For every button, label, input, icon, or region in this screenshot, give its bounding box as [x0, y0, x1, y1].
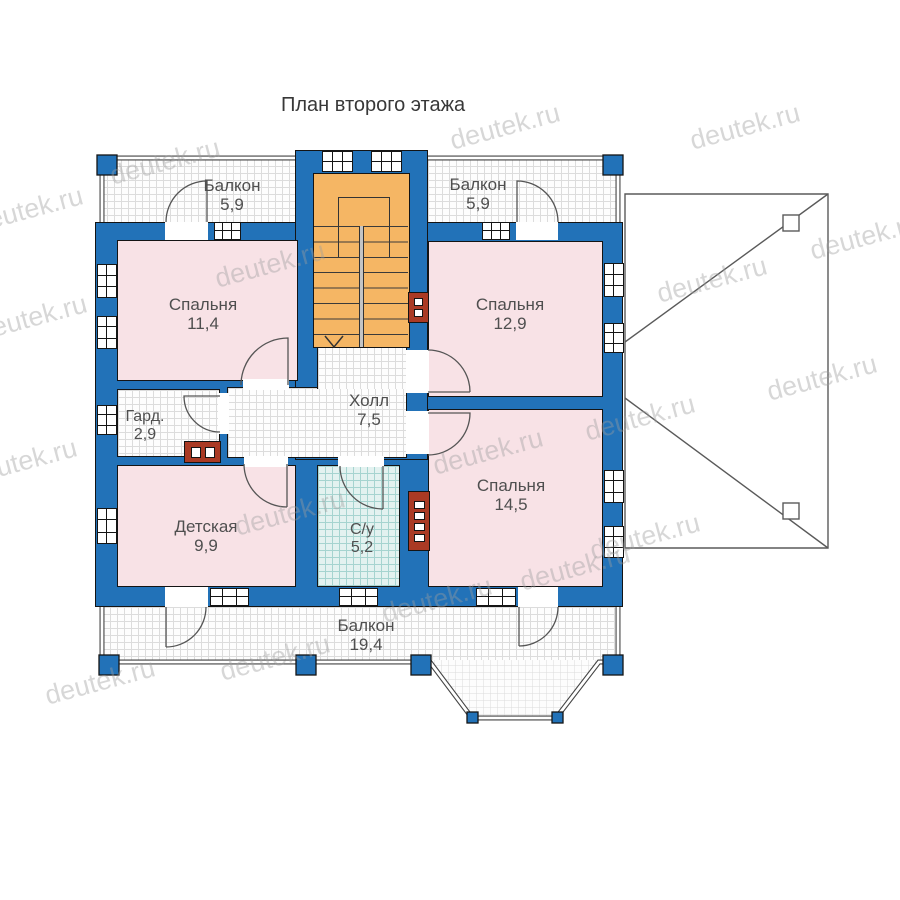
watermark: deutek.ru: [0, 288, 90, 347]
vent-cell: [205, 447, 215, 458]
room-name: Балкон: [203, 177, 260, 196]
door-opening-nursery: [244, 456, 288, 467]
watermark: deutek.ru: [687, 97, 804, 156]
door-opening-bedroom-right: [406, 350, 429, 393]
window: [604, 470, 624, 503]
door-opening-bedroom-left: [243, 379, 289, 390]
window: [371, 151, 402, 172]
room-balcony-top-left-floor: [100, 159, 295, 222]
window: [97, 264, 117, 298]
door-opening-nursery-balcony: [165, 587, 208, 607]
railing-post: [467, 712, 478, 723]
room-area: 14,5: [477, 496, 545, 515]
door-opening-balcony-tl: [165, 222, 208, 240]
staircase: [313, 173, 410, 348]
label-bedroom-right: Спальня 12,9: [476, 296, 544, 333]
label-balcony-top-right: Балкон 5,9: [449, 176, 506, 213]
chimney-vent: [408, 292, 429, 323]
room-name: Гард.: [126, 408, 165, 426]
floor-plan-page: План второго этажа: [0, 0, 900, 900]
label-bedroom-master: Спальня 14,5: [477, 477, 545, 514]
room-name: Балкон: [337, 617, 394, 636]
room-name: Спальня: [169, 296, 237, 315]
door-opening-balcony-tr: [516, 222, 558, 240]
watermark: deutek.ru: [764, 348, 881, 407]
room-area: 19,4: [337, 636, 394, 655]
bathroom-vent: [408, 491, 430, 551]
room-area: 2,9: [126, 426, 165, 444]
door-opening-bedroom-master: [406, 411, 429, 454]
stair-handrail: [359, 226, 364, 347]
vent-cell: [191, 447, 201, 458]
window: [604, 526, 624, 558]
window: [604, 323, 624, 353]
room-area: 12,9: [476, 315, 544, 334]
room-area: 11,4: [169, 315, 237, 334]
label-wardrobe: Гард. 2,9: [126, 408, 165, 443]
vent-cell: [414, 534, 425, 542]
label-balcony-top-left: Балкон 5,9: [203, 177, 260, 214]
room-area: 9,9: [175, 537, 238, 556]
roof-outline: [625, 194, 828, 548]
window: [97, 508, 117, 544]
label-nursery: Детская 9,9: [175, 518, 238, 555]
door-opening-master-balcony: [518, 587, 558, 607]
window: [476, 588, 516, 606]
room-area: 5,2: [350, 539, 374, 557]
label-hall: Холл 7,5: [349, 392, 389, 429]
watermark: deutek.ru: [0, 432, 80, 491]
vent-cell: [414, 523, 425, 531]
room-name: Спальня: [477, 477, 545, 496]
watermark: deutek.ru: [0, 180, 86, 239]
window: [604, 263, 624, 297]
watermark: deutek.ru: [807, 207, 900, 266]
vent-cell: [414, 298, 423, 306]
window: [214, 222, 241, 240]
label-balcony-bottom: Балкон 19,4: [337, 617, 394, 654]
vent-cell: [414, 512, 425, 520]
window: [482, 222, 510, 240]
balcony-bay-floor: [430, 660, 600, 716]
page-title: План второго этажа: [281, 94, 465, 117]
room-hall-upper-part: [317, 347, 407, 389]
label-bathroom: С/у 5,2: [350, 521, 374, 556]
room-area: 5,9: [203, 196, 260, 215]
room-name: С/у: [350, 521, 374, 539]
window: [97, 405, 117, 435]
window: [339, 588, 378, 606]
watermark: deutek.ru: [654, 250, 771, 309]
room-name: Балкон: [449, 176, 506, 195]
railing-post: [552, 712, 563, 723]
room-name: Холл: [349, 392, 389, 411]
door-opening-wardrobe: [218, 393, 229, 434]
vent-cell: [414, 309, 423, 317]
room-name: Спальня: [476, 296, 544, 315]
vent-cell: [414, 501, 425, 509]
room-area: 7,5: [349, 411, 389, 430]
room-area: 5,9: [449, 195, 506, 214]
room-name: Детская: [175, 518, 238, 537]
door-opening-bathroom: [338, 456, 384, 467]
label-bedroom-left: Спальня 11,4: [169, 296, 237, 333]
window: [97, 316, 117, 349]
window: [322, 151, 353, 172]
wardrobe-vent: [184, 441, 221, 463]
window: [210, 588, 249, 606]
